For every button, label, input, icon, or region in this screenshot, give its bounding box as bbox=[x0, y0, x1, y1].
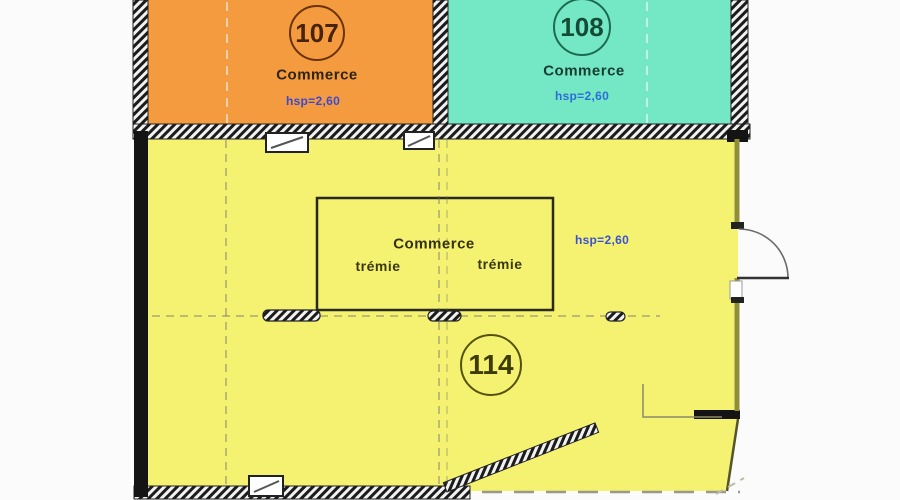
floor-plan: 107 Commerce hsp=2,60 108 Commerce hsp=2… bbox=[0, 0, 900, 500]
room-107-label: Commerce bbox=[276, 68, 358, 83]
tremie-label-left: trémie bbox=[355, 259, 400, 273]
door bbox=[730, 222, 789, 303]
tremie-label-right: trémie bbox=[477, 257, 522, 271]
door-jamb-bottom bbox=[731, 297, 744, 303]
wall-opening bbox=[730, 281, 742, 299]
door-swing-arc bbox=[739, 229, 788, 278]
room-107-ceiling-height: hsp=2,60 bbox=[286, 95, 340, 107]
room-108-number: 108 bbox=[560, 12, 603, 43]
room-108-label: Commerce bbox=[543, 64, 625, 79]
room-107-number: 107 bbox=[295, 18, 338, 49]
door-jamb-top bbox=[731, 222, 744, 229]
room-108-number-badge: 108 bbox=[553, 0, 611, 56]
room-107-number-badge: 107 bbox=[289, 5, 345, 61]
room-114-label: Commerce bbox=[393, 237, 475, 252]
room-114-number-badge: 114 bbox=[460, 334, 522, 396]
room-114-ceiling-height: hsp=2,60 bbox=[575, 234, 629, 246]
room-108-ceiling-height: hsp=2,60 bbox=[555, 90, 609, 102]
room-114-number: 114 bbox=[468, 349, 513, 381]
